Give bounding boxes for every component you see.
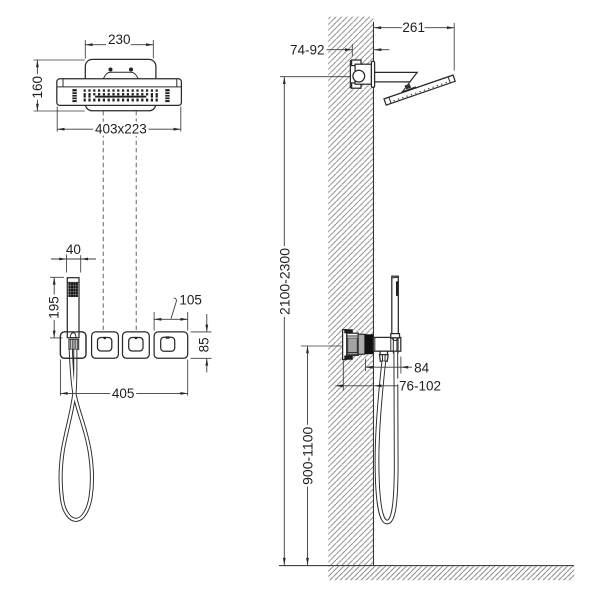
svg-text:900-1100: 900-1100 (300, 427, 316, 485)
svg-text:160: 160 (30, 76, 45, 99)
svg-text:105: 105 (179, 292, 202, 307)
svg-text:40: 40 (66, 242, 81, 257)
svg-text:230: 230 (108, 32, 131, 47)
svg-text:85: 85 (197, 337, 212, 352)
svg-text:74-92: 74-92 (290, 42, 325, 57)
svg-text:84: 84 (414, 360, 430, 375)
svg-text:261: 261 (402, 20, 425, 35)
svg-text:403x223: 403x223 (95, 122, 147, 137)
svg-text:2100-2300: 2100-2300 (276, 248, 292, 315)
svg-text:195: 195 (47, 296, 62, 319)
svg-text:76-102: 76-102 (399, 378, 441, 393)
svg-text:405: 405 (112, 386, 135, 401)
